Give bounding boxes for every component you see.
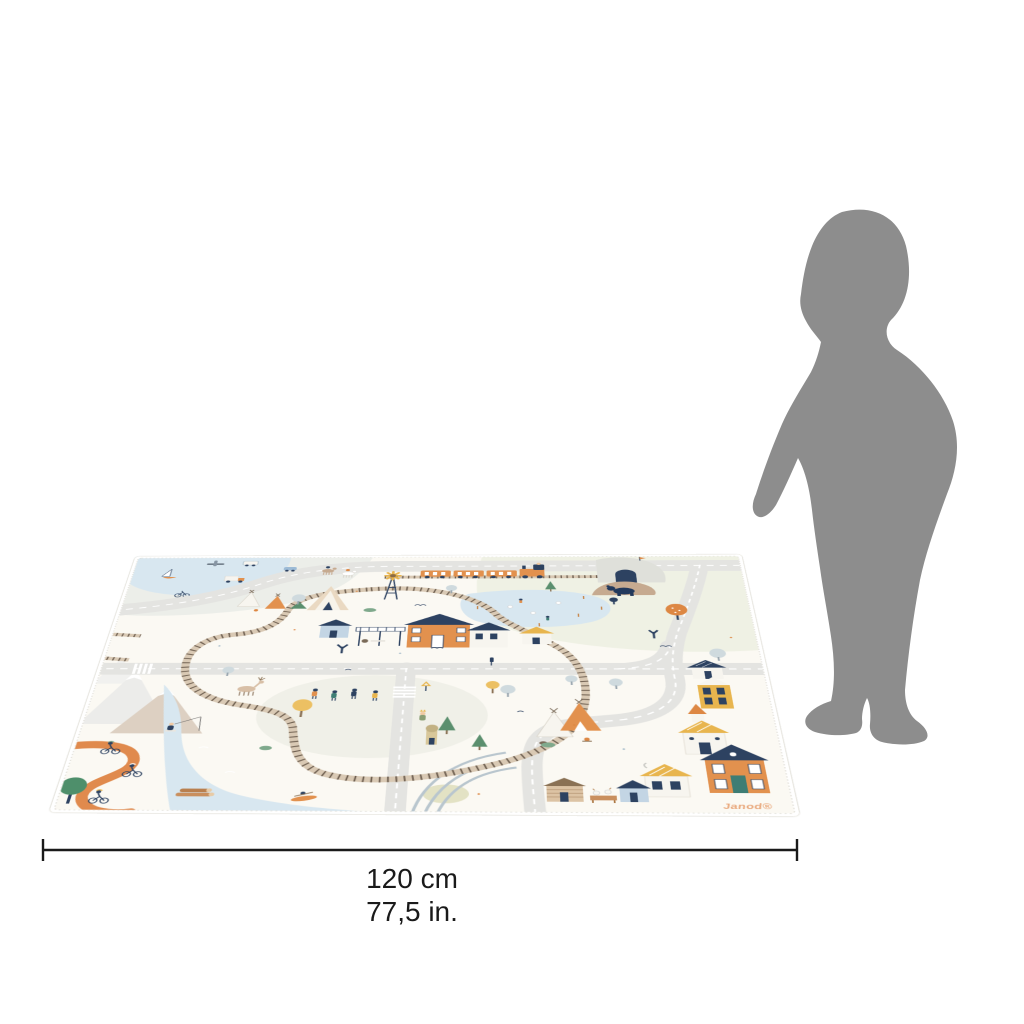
dimension-inch-label: 77,5 in. (272, 895, 552, 928)
dimension-cm-label: 120 cm (272, 862, 552, 895)
water-tower (425, 725, 439, 745)
child-silhouette (753, 210, 957, 745)
playmat: Janod® (48, 554, 801, 817)
dimension-labels: 120 cm 77,5 in. (272, 862, 552, 928)
product-size-diagram: Janod® 120 cm 77,5 in. (0, 0, 1024, 1024)
pond (460, 590, 613, 628)
dimension-line (43, 839, 797, 861)
playmat-artwork: Janod® (48, 554, 801, 817)
brand-text: Janod® (722, 801, 774, 811)
